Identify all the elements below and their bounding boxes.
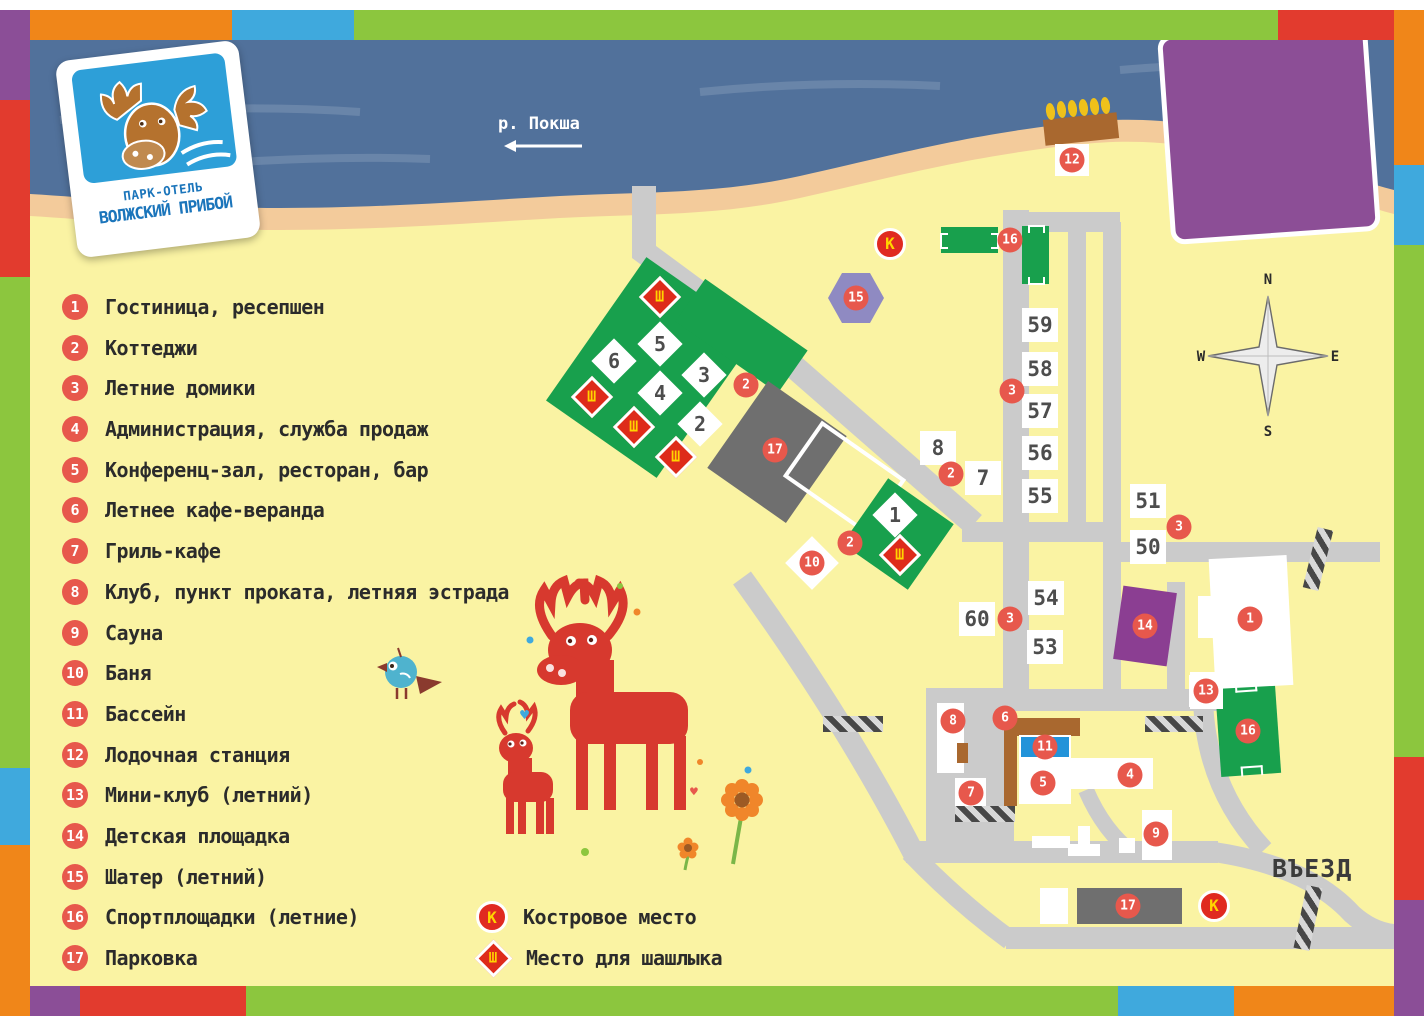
legend-item-label: Баня bbox=[105, 661, 151, 685]
legend-number-badge: 10 bbox=[62, 660, 88, 686]
frame-segment bbox=[0, 845, 30, 1016]
legend-item-label: Спортплощадки (летние) bbox=[105, 905, 359, 929]
legend-item-label: Гостиница, ресепшен bbox=[105, 295, 324, 319]
legend-item: 17Парковка bbox=[62, 945, 509, 971]
frame-segment bbox=[80, 986, 246, 1016]
legend-item: 12Лодочная станция bbox=[62, 742, 509, 768]
frame-segment bbox=[1118, 986, 1234, 1016]
small-building-d bbox=[1068, 844, 1100, 856]
frame-segment bbox=[232, 10, 354, 40]
legend-number-badge: 16 bbox=[62, 904, 88, 930]
legend-item: 7Гриль-кафе bbox=[62, 538, 509, 564]
logo-card: ПАРК-ОТЕЛЬ ВОЛЖСКИЙ ПРИБОЙ bbox=[55, 40, 262, 259]
cafe-veranda-wing-h bbox=[1016, 718, 1080, 736]
bbq-spot-icon: Ш bbox=[474, 939, 512, 977]
frame-segment bbox=[0, 100, 30, 277]
legend-item-label: Мини-клуб (летний) bbox=[105, 783, 313, 807]
legend-number-badge: 3 bbox=[62, 375, 88, 401]
compass-w: W bbox=[1197, 349, 1206, 365]
legend-item: 9Сауна bbox=[62, 620, 509, 646]
frame-segment bbox=[0, 277, 30, 768]
playground-area bbox=[1113, 586, 1177, 667]
legend-number-badge: 14 bbox=[62, 823, 88, 849]
legend-item-label: Сауна bbox=[105, 621, 163, 645]
legend-item-label: Бассейн bbox=[105, 702, 186, 726]
football-field-vertical bbox=[1022, 226, 1049, 284]
small-building-a bbox=[1119, 838, 1135, 853]
hotel-wing bbox=[1198, 596, 1216, 638]
legend-number-badge: 11 bbox=[62, 701, 88, 727]
legend-symbol-fire: К Костровое место bbox=[476, 901, 696, 933]
legend-number-badge: 15 bbox=[62, 864, 88, 890]
legend-list: 1Гостиница, ресепшен2Коттеджи3Летние дом… bbox=[62, 294, 509, 971]
small-building-b bbox=[1032, 836, 1070, 848]
legend-item: 2Коттеджи bbox=[62, 335, 509, 361]
legend-item-label: Шатер (летний) bbox=[105, 865, 267, 889]
legend-item-label: Детская площадка bbox=[105, 824, 290, 848]
administration-building bbox=[1070, 758, 1153, 789]
legend-number-badge: 13 bbox=[62, 782, 88, 808]
legend-number-badge: 1 bbox=[62, 294, 88, 320]
legend-item: 8Клуб, пункт проката, летняя эстрада bbox=[62, 579, 509, 605]
restaurant-building bbox=[1019, 759, 1071, 804]
legend-item-label: Летние домики bbox=[105, 376, 255, 400]
river-label: р. Покша bbox=[498, 114, 580, 134]
legend-number-badge: 9 bbox=[62, 620, 88, 646]
frame-segment bbox=[0, 10, 30, 100]
frame-segment bbox=[1394, 900, 1424, 1016]
legend-item: 15Шатер (летний) bbox=[62, 864, 509, 890]
legend-number-badge: 2 bbox=[62, 335, 88, 361]
fire-pit-icon: К bbox=[476, 901, 508, 933]
barrier-gate bbox=[1145, 716, 1203, 732]
resort-map-page: ♥ ♥ N S W E р. Покша ВЪЕЗД bbox=[0, 0, 1424, 1024]
compass-rose: N S W E bbox=[1193, 270, 1343, 440]
main-parking-area bbox=[1077, 888, 1182, 924]
compass-n: N bbox=[1264, 272, 1272, 288]
frame-segment bbox=[0, 768, 30, 845]
legend-number-badge: 7 bbox=[62, 538, 88, 564]
swimming-pool bbox=[1019, 735, 1071, 759]
legend-number-badge: 12 bbox=[62, 742, 88, 768]
legend-symbol-bbq: Ш Место для шашлыка bbox=[476, 942, 722, 974]
grill-cafe-building bbox=[955, 778, 986, 809]
legend-item-label: Клуб, пункт проката, летняя эстрада bbox=[105, 580, 509, 604]
frame-segment bbox=[30, 10, 232, 40]
frame-segment bbox=[1394, 10, 1424, 165]
legend-item: 13Мини-клуб (летний) bbox=[62, 782, 509, 808]
football-field-horizontal bbox=[941, 227, 998, 253]
legend-item: 11Бассейн bbox=[62, 701, 509, 727]
frame-segment bbox=[1278, 10, 1394, 40]
frame-segment bbox=[246, 986, 1118, 1016]
legend-item-label: Администрация, служба продаж bbox=[105, 417, 428, 441]
legend-number-badge: 6 bbox=[62, 497, 88, 523]
legend-number-badge: 17 bbox=[62, 945, 88, 971]
logo-moose-icon bbox=[71, 52, 238, 184]
logo-moose-art bbox=[71, 52, 238, 184]
legend-symbol-label: Место для шашлыка bbox=[526, 946, 722, 970]
legend-item: 4Администрация, служба продаж bbox=[62, 416, 509, 442]
legend-item: 3Летние домики bbox=[62, 375, 509, 401]
frame-segment bbox=[1394, 757, 1424, 900]
parking-kiosk bbox=[1040, 888, 1068, 924]
frame-segment bbox=[30, 986, 80, 1016]
barrier-gate bbox=[823, 716, 883, 732]
legend-item-label: Коттеджи bbox=[105, 336, 197, 360]
club-annex bbox=[957, 743, 968, 763]
legend-item: 5Конференц-зал, ресторан, бар bbox=[62, 457, 509, 483]
sports-field-right bbox=[1215, 681, 1281, 777]
legend-item: 14Детская площадка bbox=[62, 823, 509, 849]
river-flow-arrow bbox=[504, 140, 584, 152]
frame-segment bbox=[1394, 245, 1424, 757]
legend-number-badge: 4 bbox=[62, 416, 88, 442]
entrance-label: ВЪЕЗД bbox=[1272, 854, 1352, 883]
legend-item-label: Летнее кафе-веранда bbox=[105, 498, 324, 522]
legend-item: 6Летнее кафе-веранда bbox=[62, 497, 509, 523]
legend-number-badge: 5 bbox=[62, 457, 88, 483]
legend-item: 10Баня bbox=[62, 660, 509, 686]
hotel-building bbox=[1209, 555, 1294, 689]
decorative-purple-card bbox=[1157, 21, 1381, 245]
legend-symbol-label: Костровое место bbox=[523, 905, 696, 929]
legend-item: 16Спортплощадки (летние) bbox=[62, 904, 509, 930]
compass-s: S bbox=[1264, 424, 1272, 440]
legend-item-label: Парковка bbox=[105, 946, 197, 970]
frame-segment bbox=[354, 10, 1278, 40]
legend-item: 1Гостиница, ресепшен bbox=[62, 294, 509, 320]
frame-segment bbox=[1394, 165, 1424, 245]
barrier-gate bbox=[955, 806, 1015, 822]
legend-item-label: Гриль-кафе bbox=[105, 539, 220, 563]
legend-number-badge: 8 bbox=[62, 579, 88, 605]
legend-item-label: Конференц-зал, ресторан, бар bbox=[105, 458, 428, 482]
mini-club-plate bbox=[1190, 672, 1223, 709]
compass-e: E bbox=[1331, 349, 1339, 365]
frame-segment bbox=[1234, 986, 1394, 1016]
legend-item-label: Лодочная станция bbox=[105, 743, 290, 767]
sauna-building bbox=[1142, 810, 1172, 860]
